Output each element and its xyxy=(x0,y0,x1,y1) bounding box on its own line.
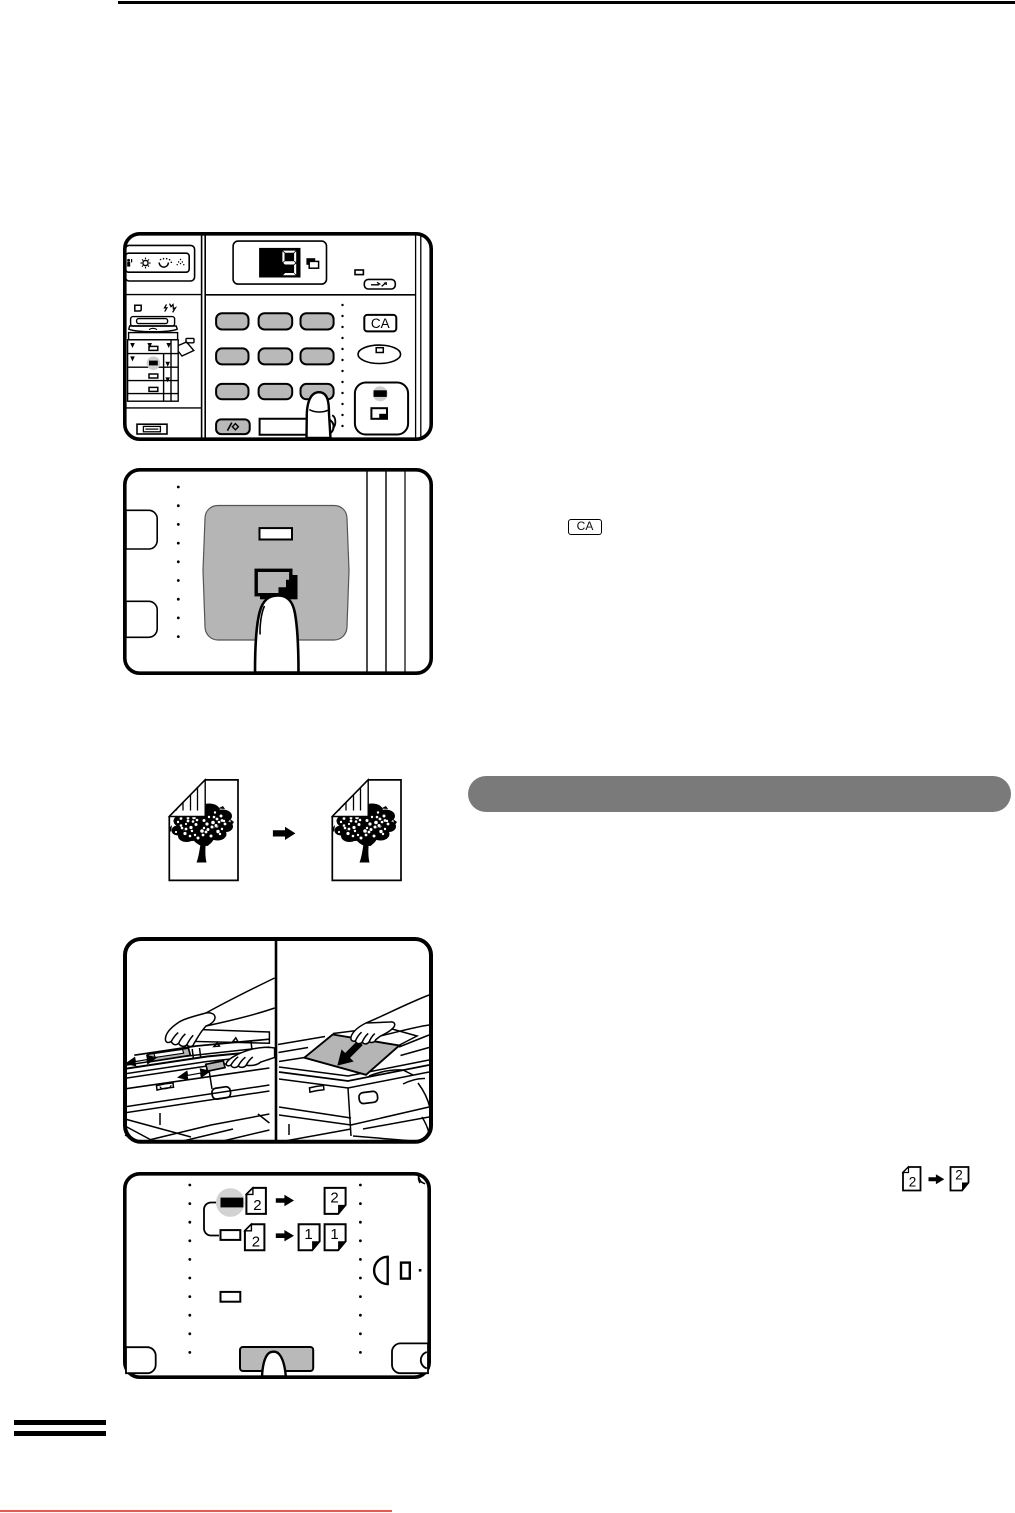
svg-text:2: 2 xyxy=(330,1189,338,1206)
svg-text:1: 1 xyxy=(304,1226,312,1243)
svg-text:2: 2 xyxy=(253,1197,261,1214)
svg-text:1: 1 xyxy=(330,1226,338,1243)
svg-text:2: 2 xyxy=(955,1168,963,1183)
svg-text:2: 2 xyxy=(909,1175,917,1190)
svg-text:CA: CA xyxy=(371,316,390,331)
svg-text:2: 2 xyxy=(252,1233,260,1250)
